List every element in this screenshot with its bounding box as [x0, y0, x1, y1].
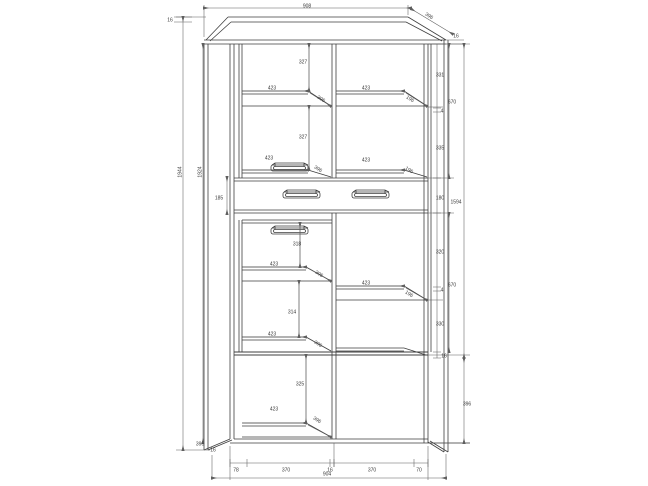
dim-label-right-span-upper: 1594: [450, 199, 461, 205]
dim-label-right-span-lower: 396: [463, 401, 472, 407]
dim-label-drawer-height-left: 185: [215, 195, 224, 201]
dim-label-top-width: 908: [303, 3, 312, 9]
dim-label-lower-left-cell-1: 318: [293, 241, 302, 247]
dim-label-upper-right-cell-1: 331: [436, 72, 445, 78]
dim-label-lower-bottom-thickness: 16: [441, 353, 447, 359]
dim-label-upper-left-shelf-width-1: 423: [268, 85, 277, 91]
dim-label-bottom-seg-4: 370: [368, 467, 377, 473]
dimension-labels: 9083961616194419243274233963274233964231…: [167, 3, 471, 477]
dim-label-upper-left-shelf-depth-2: 396: [313, 164, 323, 174]
dim-label-lower-right-cell-2: 330: [436, 321, 445, 327]
cabinet-partition: [332, 44, 336, 439]
dim-label-top-depth: 396: [424, 11, 434, 21]
dim-label-lower-left-shelf-width-1: 423: [270, 261, 279, 267]
dim-label-upper-shelf-thickness: 4: [441, 108, 444, 114]
dim-label-bottom-seg-2: 370: [282, 467, 291, 473]
dim-label-height-inner: 1924: [197, 166, 203, 177]
dim-label-upper-right-shelf-depth-2: 196: [404, 165, 414, 175]
drawer-band: [234, 178, 428, 213]
dim-label-foot-thickness: 16: [210, 447, 216, 453]
cabinet-bottom: [230, 439, 470, 443]
dim-label-bottom-seg-1: 78: [233, 467, 239, 473]
dim-label-height-outer: 1944: [177, 166, 183, 177]
dim-label-lower-door-height: 670: [448, 282, 457, 288]
dimension-lines: [174, 5, 470, 480]
dim-label-upper-left-shelf-width-2: 423: [265, 155, 274, 161]
dim-label-lower-shelf-thickness: 4: [441, 287, 444, 293]
upper-left-door[interactable]: [239, 44, 242, 178]
dim-label-drawer-height-right: 180: [436, 195, 445, 201]
left-column-shelves: [242, 91, 331, 437]
dim-label-lower-left-shelf-width-2: 423: [268, 331, 277, 337]
dim-label-upper-right-shelf-width-1: 423: [362, 85, 371, 91]
dim-label-upper-door-height: 670: [448, 99, 457, 105]
dim-label-base-cell: 325: [296, 381, 305, 387]
dim-label-top-thickness-left: 16: [167, 17, 173, 23]
dim-label-lower-left-shelf-depth-1: 396: [314, 269, 324, 279]
dim-label-upper-right-shelf-depth-1: 196: [405, 94, 415, 104]
dim-label-base-shelf-width: 423: [270, 406, 279, 412]
dim-label-upper-left-cell-1: 327: [299, 59, 308, 65]
dim-label-upper-left-cell-2: 327: [299, 134, 308, 140]
dim-label-lower-left-cell-2: 314: [288, 309, 297, 315]
right-column-shelves: [336, 91, 427, 355]
cabinet-top-panel: [204, 17, 446, 44]
lower-left-door[interactable]: [234, 220, 428, 355]
drawer-handle-right[interactable]: [352, 190, 389, 198]
dim-label-lower-right-shelf-width: 423: [362, 280, 371, 286]
dim-label-upper-right-shelf-width-2: 423: [362, 157, 371, 163]
dim-label-top-thickness-right: 16: [453, 33, 459, 39]
dim-label-bottom-seg-5: 70: [416, 467, 422, 473]
cabinet-drawing: 9083961616194419243274233963274233964231…: [0, 0, 648, 486]
dim-label-base-shelf-depth: 396: [312, 415, 322, 425]
drawer-handle-left[interactable]: [283, 190, 320, 198]
dim-label-bottom-overall: 904: [323, 471, 332, 477]
dim-label-lower-right-cell-1: 320: [436, 249, 445, 255]
dim-label-upper-left-shelf-depth-1: 396: [316, 94, 326, 104]
lower-left-door-handle[interactable]: [271, 226, 308, 234]
dim-label-foot-depth: 396: [196, 441, 205, 447]
dim-label-lower-left-shelf-depth-2: 396: [313, 339, 323, 349]
technical-drawing-canvas: 9083961616194419243274233963274233964231…: [0, 0, 648, 486]
dim-label-upper-right-cell-2: 335: [436, 145, 445, 151]
